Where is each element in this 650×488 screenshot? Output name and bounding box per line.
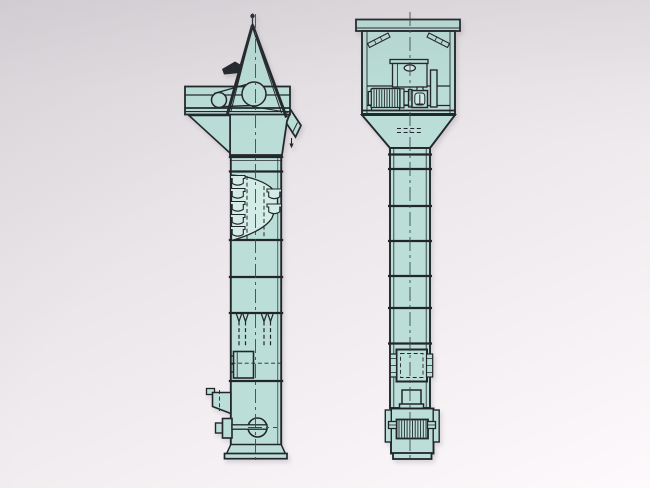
inlet-chute bbox=[207, 389, 231, 414]
gear-drive bbox=[412, 87, 428, 108]
feed-spout bbox=[400, 390, 424, 409]
boot-grate bbox=[397, 420, 429, 439]
boot-base bbox=[393, 453, 432, 459]
guard-panel bbox=[431, 70, 438, 107]
head-hopper bbox=[189, 114, 290, 156]
front-elevation-view bbox=[356, 12, 460, 461]
belt-pulley-large bbox=[242, 82, 266, 106]
boot-section bbox=[385, 409, 439, 460]
bucket-elevator-drawing bbox=[0, 0, 650, 488]
top-cap bbox=[356, 20, 460, 32]
motor-hood bbox=[222, 62, 242, 75]
transition-hopper bbox=[362, 115, 455, 148]
apex-knob bbox=[250, 14, 254, 18]
lifting-lug-panel bbox=[390, 60, 428, 88]
inspection-window bbox=[390, 350, 432, 382]
electric-motor bbox=[368, 89, 400, 111]
belt-pulley-small bbox=[212, 93, 227, 108]
side-elevation-view bbox=[185, 14, 301, 462]
flow-arrow-icon bbox=[289, 144, 293, 149]
scanned-drawing-page bbox=[0, 0, 650, 488]
